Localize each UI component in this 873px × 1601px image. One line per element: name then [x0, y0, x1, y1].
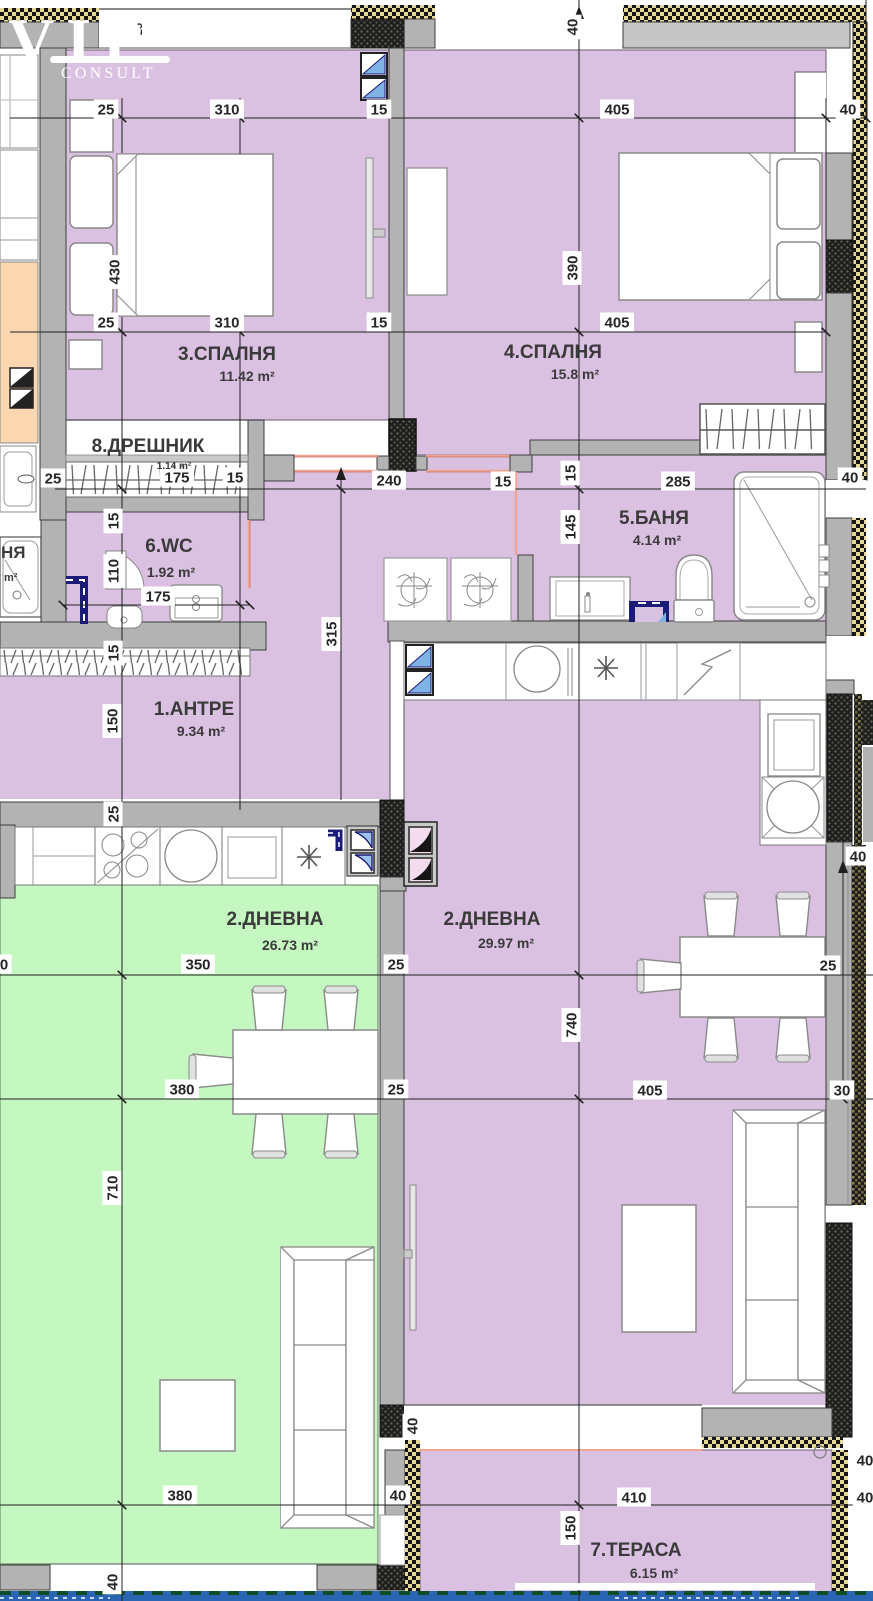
- svg-text:175: 175: [145, 588, 170, 605]
- svg-text:315: 315: [323, 621, 340, 646]
- svg-text:710: 710: [104, 1175, 121, 1200]
- svg-text:6.WC: 6.WC: [145, 536, 193, 557]
- svg-text:410: 410: [621, 1489, 646, 1506]
- svg-text:40: 40: [104, 1574, 121, 1591]
- svg-text:CONSULT: CONSULT: [61, 65, 156, 82]
- svg-text:405: 405: [604, 314, 629, 331]
- svg-text:5.БАНЯ: 5.БАНЯ: [619, 508, 689, 529]
- svg-text:25: 25: [98, 101, 115, 118]
- svg-text:110: 110: [105, 559, 122, 583]
- svg-text:40: 40: [857, 1452, 873, 1469]
- svg-text:m²: m²: [4, 572, 18, 584]
- svg-text:25: 25: [388, 956, 405, 973]
- svg-text:40: 40: [857, 1489, 873, 1506]
- svg-text:3.СПАЛНЯ: 3.СПАЛНЯ: [178, 344, 276, 365]
- svg-text:6.15 m²: 6.15 m²: [630, 1565, 679, 1581]
- svg-text:310: 310: [214, 101, 239, 118]
- svg-text:150: 150: [104, 708, 121, 733]
- svg-text:2.ДНЕВНА: 2.ДНЕВНА: [227, 909, 324, 930]
- svg-text:310: 310: [214, 314, 239, 331]
- svg-text:25: 25: [820, 957, 837, 974]
- svg-text:8.ДРЕШНИК: 8.ДРЕШНИК: [92, 436, 205, 457]
- svg-text:405: 405: [604, 101, 629, 118]
- svg-text:15.8 m²: 15.8 m²: [551, 366, 600, 382]
- svg-text:25: 25: [105, 806, 122, 823]
- svg-text:40: 40: [564, 19, 581, 36]
- svg-text:285: 285: [665, 473, 690, 490]
- svg-text:15: 15: [105, 645, 122, 662]
- svg-text:390: 390: [564, 255, 581, 280]
- svg-text:0: 0: [0, 956, 8, 973]
- svg-text:40: 40: [840, 101, 857, 118]
- svg-text:430: 430: [106, 259, 123, 284]
- svg-text:350: 350: [185, 956, 210, 973]
- svg-text:15: 15: [562, 465, 579, 482]
- svg-text:40: 40: [404, 1418, 421, 1435]
- svg-text:29.97 m²: 29.97 m²: [478, 935, 534, 951]
- svg-text:4.СПАЛНЯ: 4.СПАЛНЯ: [504, 342, 602, 363]
- svg-text:40: 40: [850, 848, 867, 865]
- svg-text:1.92 m²: 1.92 m²: [147, 564, 196, 580]
- svg-text:380: 380: [169, 1081, 194, 1098]
- svg-text:40: 40: [842, 469, 859, 486]
- svg-text:15: 15: [371, 314, 388, 331]
- svg-text:11.42 m²: 11.42 m²: [219, 368, 275, 384]
- svg-text:25: 25: [98, 314, 115, 331]
- svg-text:9.34 m²: 9.34 m²: [177, 723, 226, 739]
- svg-text:380: 380: [167, 1487, 192, 1504]
- svg-text:150: 150: [562, 1515, 579, 1540]
- svg-text:25: 25: [388, 1081, 405, 1098]
- svg-text:4.14 m²: 4.14 m²: [633, 532, 682, 548]
- svg-text:26.73 m²: 26.73 m²: [262, 937, 318, 953]
- svg-text:25: 25: [45, 470, 62, 487]
- svg-text:740: 740: [563, 1012, 580, 1037]
- svg-text:15: 15: [105, 513, 122, 530]
- svg-text:1.АНТРЕ: 1.АНТРЕ: [154, 699, 234, 720]
- svg-text:15: 15: [495, 473, 512, 490]
- svg-text:240: 240: [376, 472, 401, 489]
- svg-text:30: 30: [834, 1082, 851, 1099]
- svg-text:40: 40: [390, 1487, 407, 1504]
- svg-text:15: 15: [371, 101, 388, 118]
- svg-text:405: 405: [637, 1082, 662, 1099]
- svg-text:2.ДНЕВНА: 2.ДНЕВНА: [444, 909, 541, 930]
- svg-text:1.14 m²: 1.14 m²: [157, 461, 192, 472]
- svg-text:145: 145: [562, 514, 579, 539]
- svg-text:НЯ: НЯ: [1, 543, 26, 562]
- svg-text:15: 15: [227, 469, 244, 486]
- svg-text:7.ТЕРАСА: 7.ТЕРАСА: [590, 1540, 682, 1561]
